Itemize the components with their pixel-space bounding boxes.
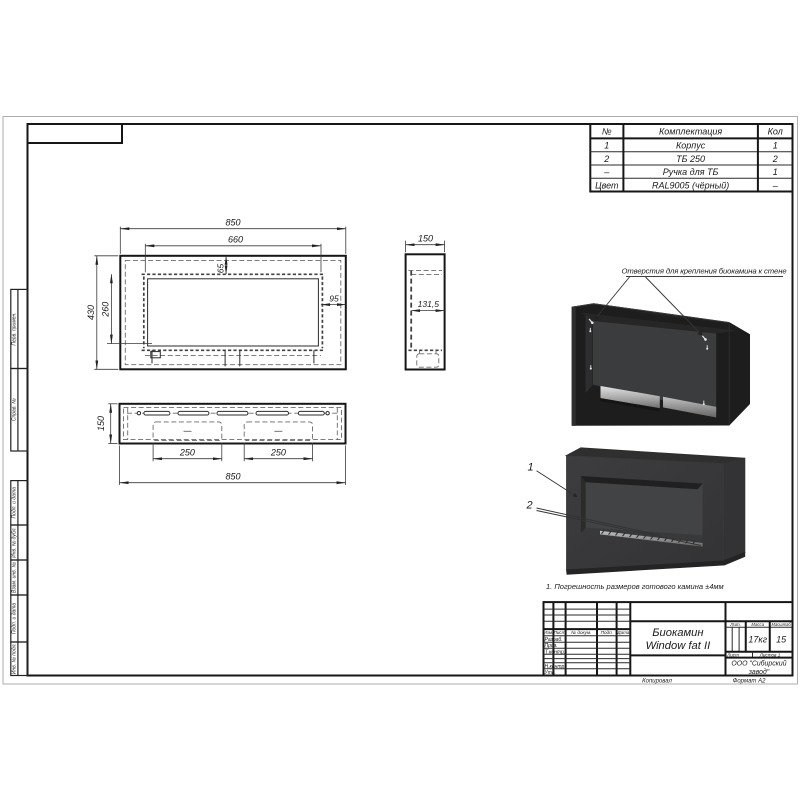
svg-text:–: – (603, 167, 610, 177)
svg-text:1. Погрешность размеров готово: 1. Погрешность размеров готового камина … (546, 582, 724, 591)
svg-text:150: 150 (418, 233, 433, 243)
svg-text:1: 1 (773, 140, 778, 150)
svg-text:2: 2 (603, 154, 609, 164)
svg-text:Window fat II: Window fat II (646, 640, 711, 652)
svg-text:Формат А2: Формат А2 (733, 679, 766, 685)
svg-text:Инв. № дубл.: Инв. № дубл. (12, 527, 18, 558)
svg-text:ООО "Сибирский: ООО "Сибирский (731, 660, 786, 668)
svg-text:2: 2 (525, 500, 532, 512)
svg-text:Подп. и дата: Подп. и дата (12, 487, 18, 519)
svg-text:Цвет: Цвет (595, 180, 619, 190)
svg-text:Масса: Масса (751, 622, 764, 627)
svg-text:Т.контр.: Т.контр. (545, 649, 565, 655)
svg-text:RAL9005 (чёрный): RAL9005 (чёрный) (652, 180, 729, 190)
svg-text:2: 2 (772, 154, 778, 164)
svg-text:Лит.: Лит. (729, 622, 741, 627)
svg-text:ТБ 250: ТБ 250 (676, 154, 705, 164)
svg-text:завод": завод" (748, 668, 770, 676)
svg-text:1: 1 (527, 462, 533, 474)
svg-text:Н.контр.: Н.контр. (545, 664, 566, 670)
svg-text:№: № (602, 127, 612, 137)
svg-text:Кол: Кол (768, 127, 783, 137)
svg-text:Масштаб: Масштаб (772, 622, 792, 627)
svg-text:17кг: 17кг (748, 635, 767, 645)
svg-text:–: – (772, 180, 779, 190)
svg-text:65: 65 (215, 264, 225, 274)
svg-text:250: 250 (179, 447, 195, 457)
svg-text:Перв. примен.: Перв. примен. (12, 312, 18, 345)
svg-text:Комплектация: Комплектация (659, 127, 722, 137)
svg-text:Биокамин: Биокамин (652, 627, 703, 639)
svg-text:Отверстия для крепления биокам: Отверстия для крепления биокамина к стен… (622, 266, 787, 275)
svg-text:Справ. №: Справ. № (12, 398, 18, 421)
svg-text:850: 850 (225, 218, 240, 228)
svg-text:1: 1 (773, 167, 778, 177)
svg-text:Взам. инв. №: Взам. инв. № (12, 561, 18, 593)
svg-text:Подп.: Подп. (601, 630, 613, 635)
svg-text:660: 660 (228, 235, 243, 245)
svg-text:Лист: Лист (726, 652, 739, 657)
svg-text:Утв.: Утв. (545, 670, 556, 676)
svg-text:Изм.: Изм. (544, 630, 554, 635)
svg-text:15: 15 (776, 635, 787, 645)
svg-text:Ручка для ТБ: Ручка для ТБ (663, 167, 719, 177)
svg-text:1: 1 (604, 140, 609, 150)
svg-text:Дата: Дата (616, 630, 630, 635)
svg-text:95: 95 (329, 293, 339, 303)
svg-text:Подп. и дата: Подп. и дата (12, 603, 18, 635)
svg-text:Инв. № подл.: Инв. № подл. (12, 643, 18, 674)
svg-text:131,5: 131,5 (418, 299, 440, 309)
svg-text:№ докум.: № докум. (571, 630, 591, 635)
svg-text:250: 250 (270, 447, 286, 457)
svg-text:260: 260 (100, 302, 110, 318)
svg-text:Пров.: Пров. (545, 643, 558, 649)
svg-text:Лист: Лист (553, 630, 566, 635)
svg-text:Листов 1: Листов 1 (759, 652, 781, 657)
svg-text:Копировал: Копировал (642, 679, 672, 685)
svg-text:150: 150 (96, 416, 106, 431)
svg-text:430: 430 (86, 305, 96, 320)
svg-text:Корпус: Корпус (676, 140, 706, 150)
svg-text:850: 850 (225, 471, 240, 481)
